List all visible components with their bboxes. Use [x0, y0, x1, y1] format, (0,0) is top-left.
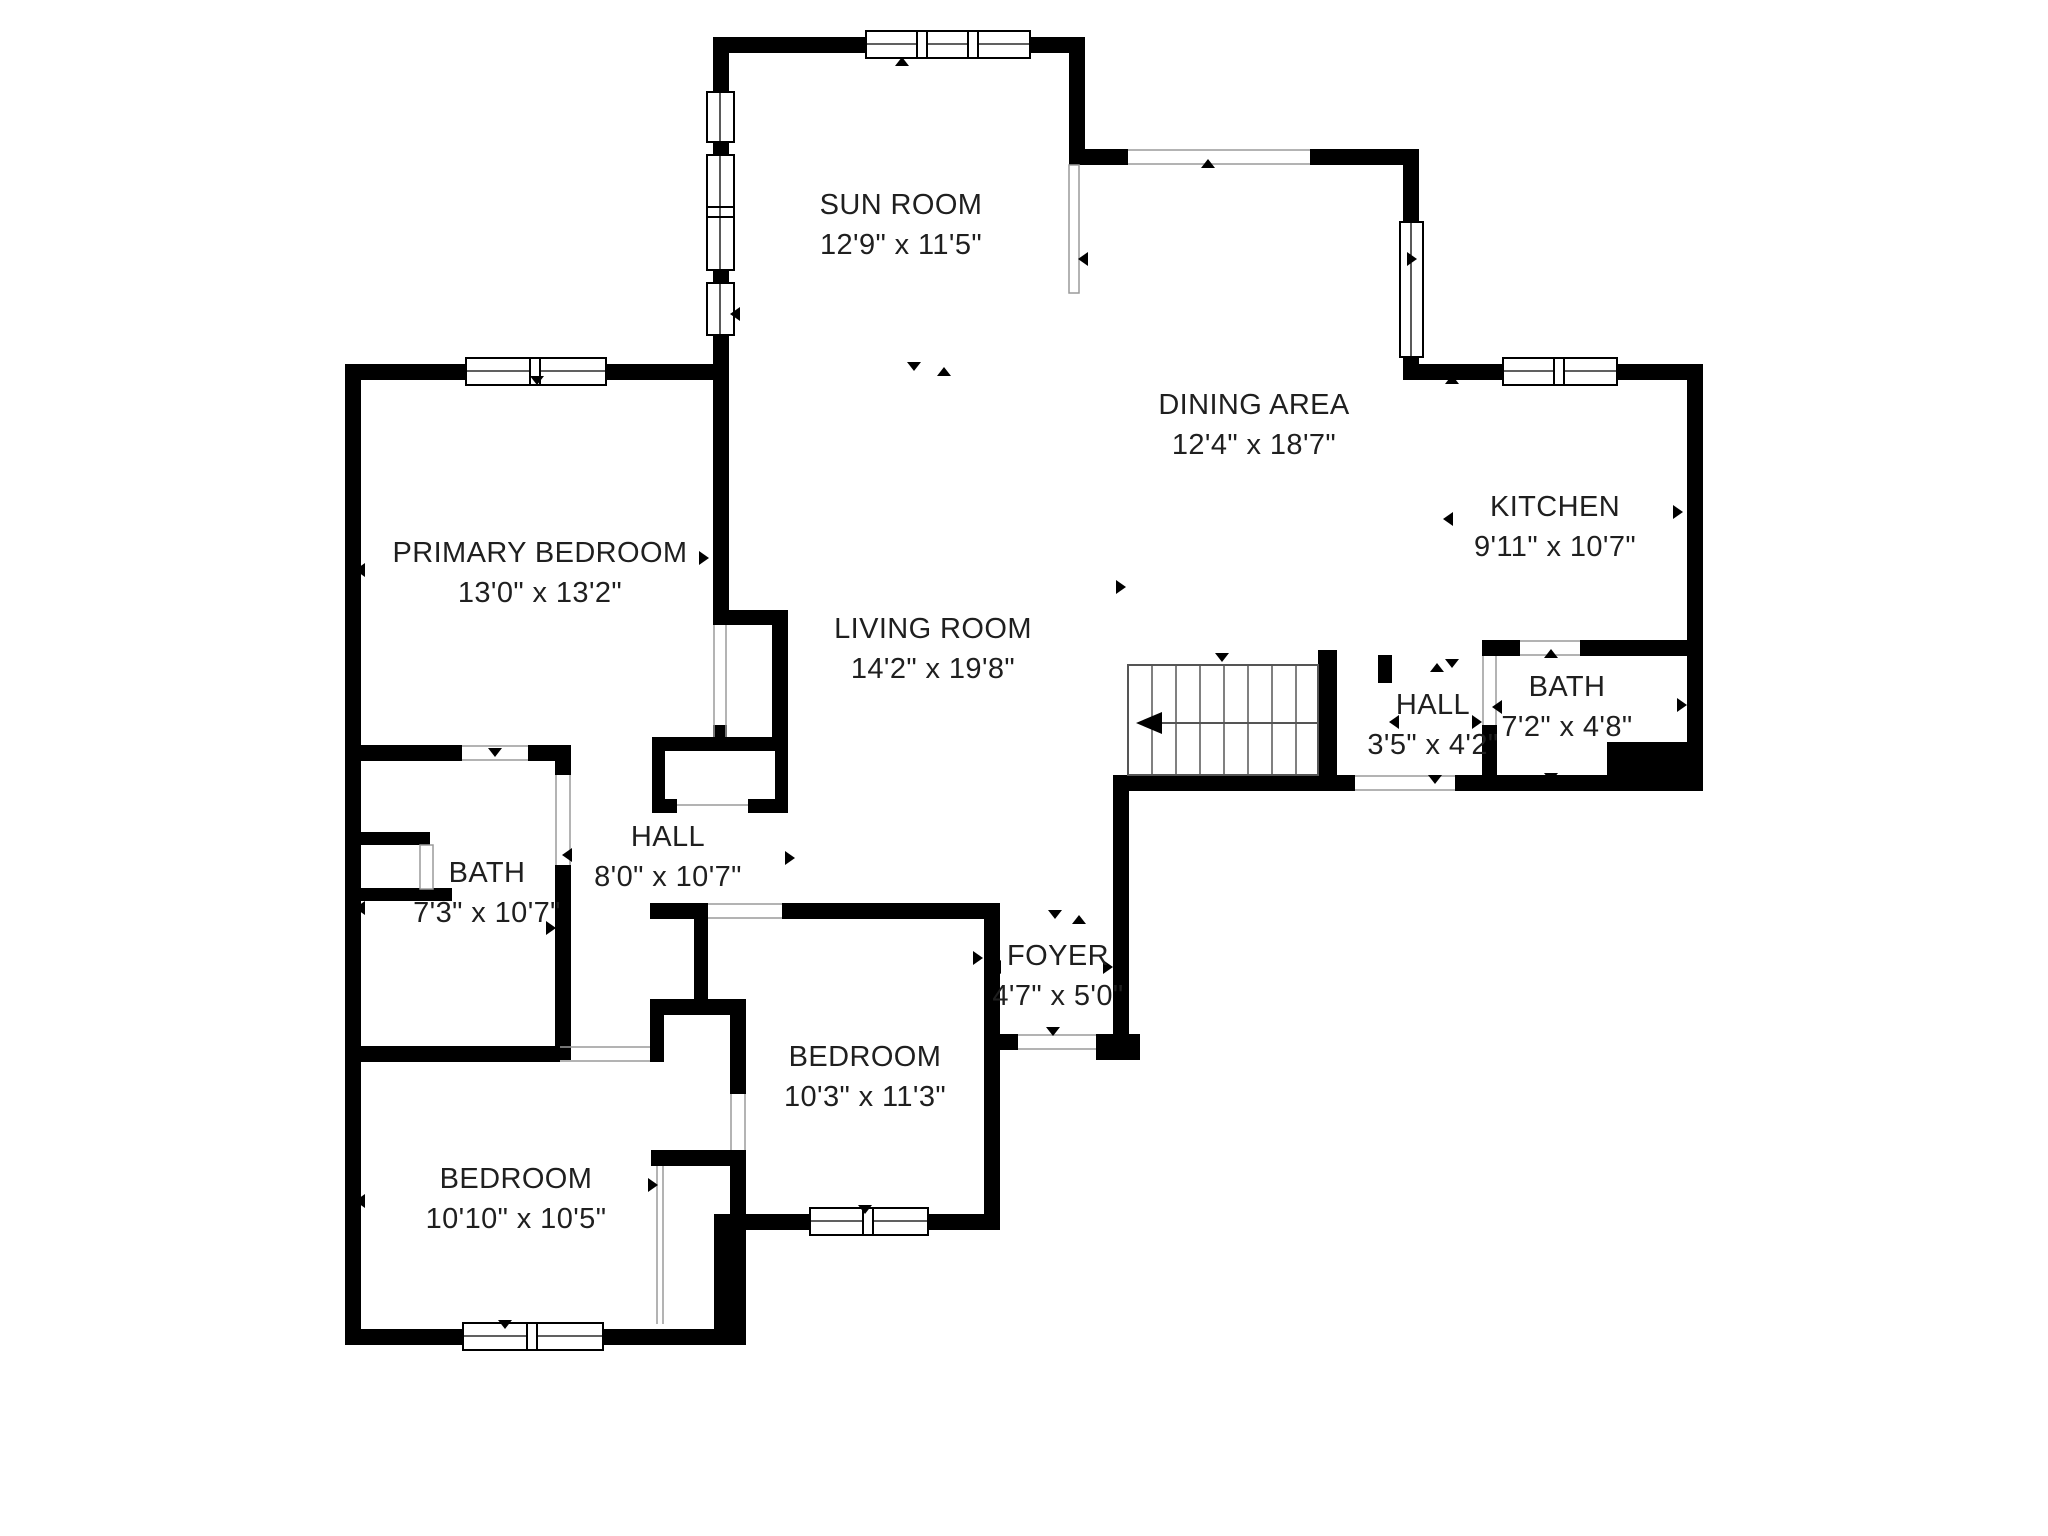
- door-arrow-icon: [699, 551, 709, 565]
- door-arrow-icon: [1072, 915, 1086, 924]
- room-name: PRIMARY BEDROOM: [393, 533, 688, 573]
- door-arrow-icon: [1428, 775, 1442, 784]
- room-name: FOYER: [992, 936, 1123, 976]
- walls-layer: [345, 37, 1703, 1345]
- door-arrow-icon: [488, 748, 502, 757]
- door-arrow-icon: [1677, 698, 1687, 712]
- room-name: SUN ROOM: [820, 185, 983, 225]
- room-label-foyer: FOYER 4'7" x 5'0": [992, 936, 1123, 1016]
- room-label-hall-lower: HALL 8'0" x 10'7": [594, 817, 742, 897]
- floor-plan-drawing: [0, 0, 2048, 1536]
- room-dimensions: 12'9" x 11'5": [820, 225, 983, 265]
- room-dimensions: 7'3" x 10'7": [413, 893, 561, 933]
- window-symbol: [810, 1208, 928, 1235]
- door-arrow-icon: [1215, 653, 1229, 662]
- door-arrow-icon: [907, 362, 921, 371]
- room-label-sun-room: SUN ROOM 12'9" x 11'5": [820, 185, 983, 265]
- floor-plan-canvas: SUN ROOM 12'9" x 11'5" DINING AREA 12'4"…: [0, 0, 2048, 1536]
- room-dimensions: 13'0" x 13'2": [393, 573, 688, 613]
- door-arrow-icon: [562, 848, 572, 862]
- room-name: HALL: [1367, 685, 1498, 725]
- room-name: BATH: [1501, 667, 1632, 707]
- window-symbol: [1503, 358, 1617, 385]
- room-name: KITCHEN: [1474, 487, 1636, 527]
- room-dimensions: 12'4" x 18'7": [1158, 425, 1349, 465]
- room-label-living-room: LIVING ROOM 14'2" x 19'8": [834, 609, 1032, 689]
- door-arrow-icon: [1048, 910, 1062, 919]
- door-arrow-icon: [785, 851, 795, 865]
- room-name: HALL: [594, 817, 742, 857]
- room-dimensions: 4'7" x 5'0": [992, 976, 1123, 1016]
- room-dimensions: 10'10" x 10'5": [426, 1199, 607, 1239]
- room-label-dining-area: DINING AREA 12'4" x 18'7": [1158, 385, 1349, 465]
- door-arrow-icon: [1443, 512, 1453, 526]
- door-arrow-icon: [1445, 659, 1459, 668]
- room-dimensions: 3'5" x 4'2": [1367, 725, 1498, 765]
- room-name: DINING AREA: [1158, 385, 1349, 425]
- room-dimensions: 8'0" x 10'7": [594, 857, 742, 897]
- room-label-hall-upper: HALL 3'5" x 4'2": [1367, 685, 1498, 765]
- room-label-bedroom-middle: BEDROOM 10'3" x 11'3": [784, 1037, 946, 1117]
- door-arrow-icon: [973, 951, 983, 965]
- room-name: BEDROOM: [426, 1159, 607, 1199]
- room-label-kitchen: KITCHEN 9'11" x 10'7": [1474, 487, 1636, 567]
- window-symbol: [866, 31, 1030, 58]
- window-symbol: [707, 92, 734, 335]
- room-label-bedroom-lower: BEDROOM 10'10" x 10'5": [426, 1159, 607, 1239]
- door-arrow-icon: [1544, 649, 1558, 658]
- window-symbol: [463, 1323, 603, 1350]
- window-symbol: [1400, 222, 1423, 357]
- room-dimensions: 9'11" x 10'7": [1474, 527, 1636, 567]
- door-arrow-icon: [937, 367, 951, 376]
- room-name: BEDROOM: [784, 1037, 946, 1077]
- room-label-bath-lower: BATH 7'3" x 10'7": [413, 853, 561, 933]
- room-label-primary-bedroom: PRIMARY BEDROOM 13'0" x 13'2": [393, 533, 688, 613]
- door-arrow-icon: [1430, 663, 1444, 672]
- stairs: [1128, 665, 1318, 775]
- room-dimensions: 7'2" x 4'8": [1501, 707, 1632, 747]
- door-arrow-icon: [1673, 505, 1683, 519]
- room-name: BATH: [413, 853, 561, 893]
- room-dimensions: 10'3" x 11'3": [784, 1077, 946, 1117]
- room-label-bath-upper: BATH 7'2" x 4'8": [1501, 667, 1632, 747]
- room-name: LIVING ROOM: [834, 609, 1032, 649]
- room-dimensions: 14'2" x 19'8": [834, 649, 1032, 689]
- door-arrow-icon: [1116, 580, 1126, 594]
